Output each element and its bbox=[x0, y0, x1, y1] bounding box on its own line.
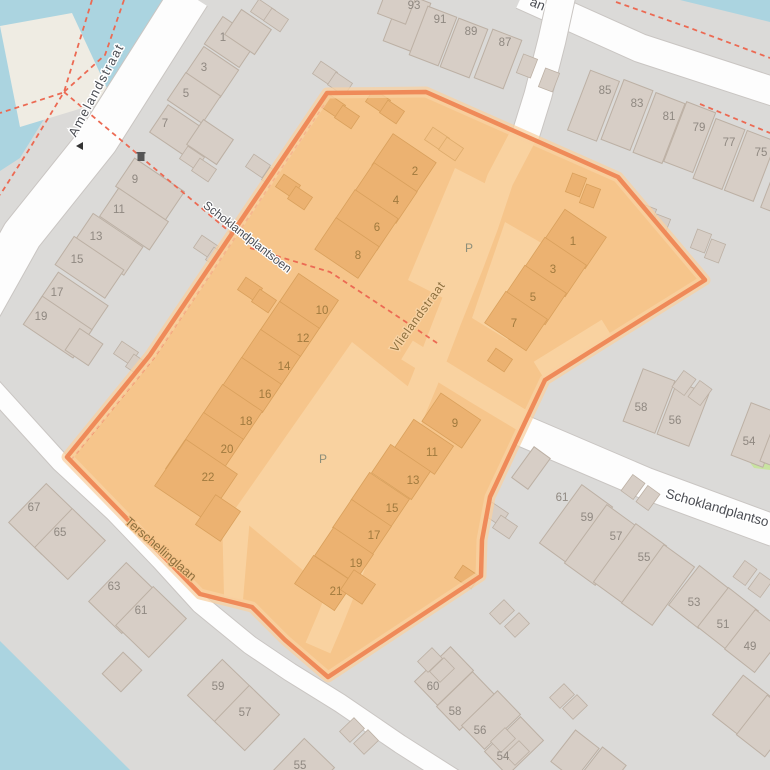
svg-text:85: 85 bbox=[599, 85, 612, 97]
svg-text:13: 13 bbox=[407, 475, 420, 487]
svg-text:61: 61 bbox=[556, 492, 569, 504]
svg-text:22: 22 bbox=[202, 472, 215, 484]
svg-text:79: 79 bbox=[693, 122, 706, 134]
svg-text:19: 19 bbox=[350, 558, 363, 570]
svg-text:1: 1 bbox=[220, 32, 226, 44]
svg-text:5: 5 bbox=[183, 88, 189, 100]
svg-text:54: 54 bbox=[743, 436, 756, 448]
svg-text:14: 14 bbox=[278, 361, 291, 373]
svg-text:5: 5 bbox=[530, 292, 536, 304]
svg-text:4: 4 bbox=[393, 195, 400, 207]
svg-text:49: 49 bbox=[744, 641, 757, 653]
svg-text:57: 57 bbox=[610, 531, 623, 543]
svg-text:P: P bbox=[465, 241, 473, 255]
svg-text:9: 9 bbox=[132, 174, 138, 186]
svg-text:59: 59 bbox=[581, 512, 594, 524]
svg-text:83: 83 bbox=[631, 98, 644, 110]
svg-text:89: 89 bbox=[465, 26, 478, 38]
svg-text:53: 53 bbox=[688, 597, 701, 609]
svg-text:11: 11 bbox=[113, 204, 125, 216]
svg-text:13: 13 bbox=[90, 231, 103, 243]
svg-text:51: 51 bbox=[717, 619, 730, 631]
svg-text:56: 56 bbox=[474, 725, 487, 737]
svg-text:2: 2 bbox=[412, 166, 418, 178]
svg-text:18: 18 bbox=[240, 416, 253, 428]
svg-text:55: 55 bbox=[294, 760, 307, 770]
svg-text:3: 3 bbox=[550, 264, 556, 276]
svg-text:63: 63 bbox=[108, 581, 121, 593]
svg-text:15: 15 bbox=[71, 254, 84, 266]
svg-text:7: 7 bbox=[511, 318, 517, 330]
svg-text:58: 58 bbox=[449, 706, 462, 718]
svg-text:81: 81 bbox=[663, 111, 676, 123]
svg-text:87: 87 bbox=[499, 37, 512, 49]
svg-text:17: 17 bbox=[368, 530, 381, 542]
svg-text:9: 9 bbox=[452, 418, 458, 430]
svg-text:15: 15 bbox=[386, 503, 399, 515]
svg-text:61: 61 bbox=[135, 605, 148, 617]
svg-text:7: 7 bbox=[162, 118, 168, 130]
svg-text:65: 65 bbox=[54, 527, 67, 539]
svg-text:11: 11 bbox=[426, 447, 438, 459]
svg-text:12: 12 bbox=[297, 333, 310, 345]
svg-text:67: 67 bbox=[28, 502, 41, 514]
svg-text:93: 93 bbox=[408, 0, 421, 12]
svg-text:58: 58 bbox=[635, 402, 648, 414]
svg-text:59: 59 bbox=[212, 681, 225, 693]
svg-text:77: 77 bbox=[723, 137, 736, 149]
svg-text:57: 57 bbox=[239, 707, 252, 719]
svg-text:16: 16 bbox=[259, 389, 272, 401]
svg-text:56: 56 bbox=[669, 415, 682, 427]
svg-text:6: 6 bbox=[374, 222, 380, 234]
svg-text:1: 1 bbox=[570, 236, 576, 248]
svg-text:75: 75 bbox=[755, 147, 768, 159]
svg-text:8: 8 bbox=[355, 250, 361, 262]
svg-text:60: 60 bbox=[427, 681, 440, 693]
svg-text:3: 3 bbox=[201, 62, 207, 74]
svg-text:20: 20 bbox=[221, 444, 234, 456]
svg-text:21: 21 bbox=[330, 586, 343, 598]
svg-text:P: P bbox=[319, 452, 327, 466]
svg-text:19: 19 bbox=[35, 311, 48, 323]
svg-text:55: 55 bbox=[638, 552, 651, 564]
svg-text:10: 10 bbox=[316, 305, 329, 317]
svg-text:54: 54 bbox=[497, 751, 510, 763]
svg-text:17: 17 bbox=[51, 287, 64, 299]
svg-text:91: 91 bbox=[434, 14, 447, 26]
